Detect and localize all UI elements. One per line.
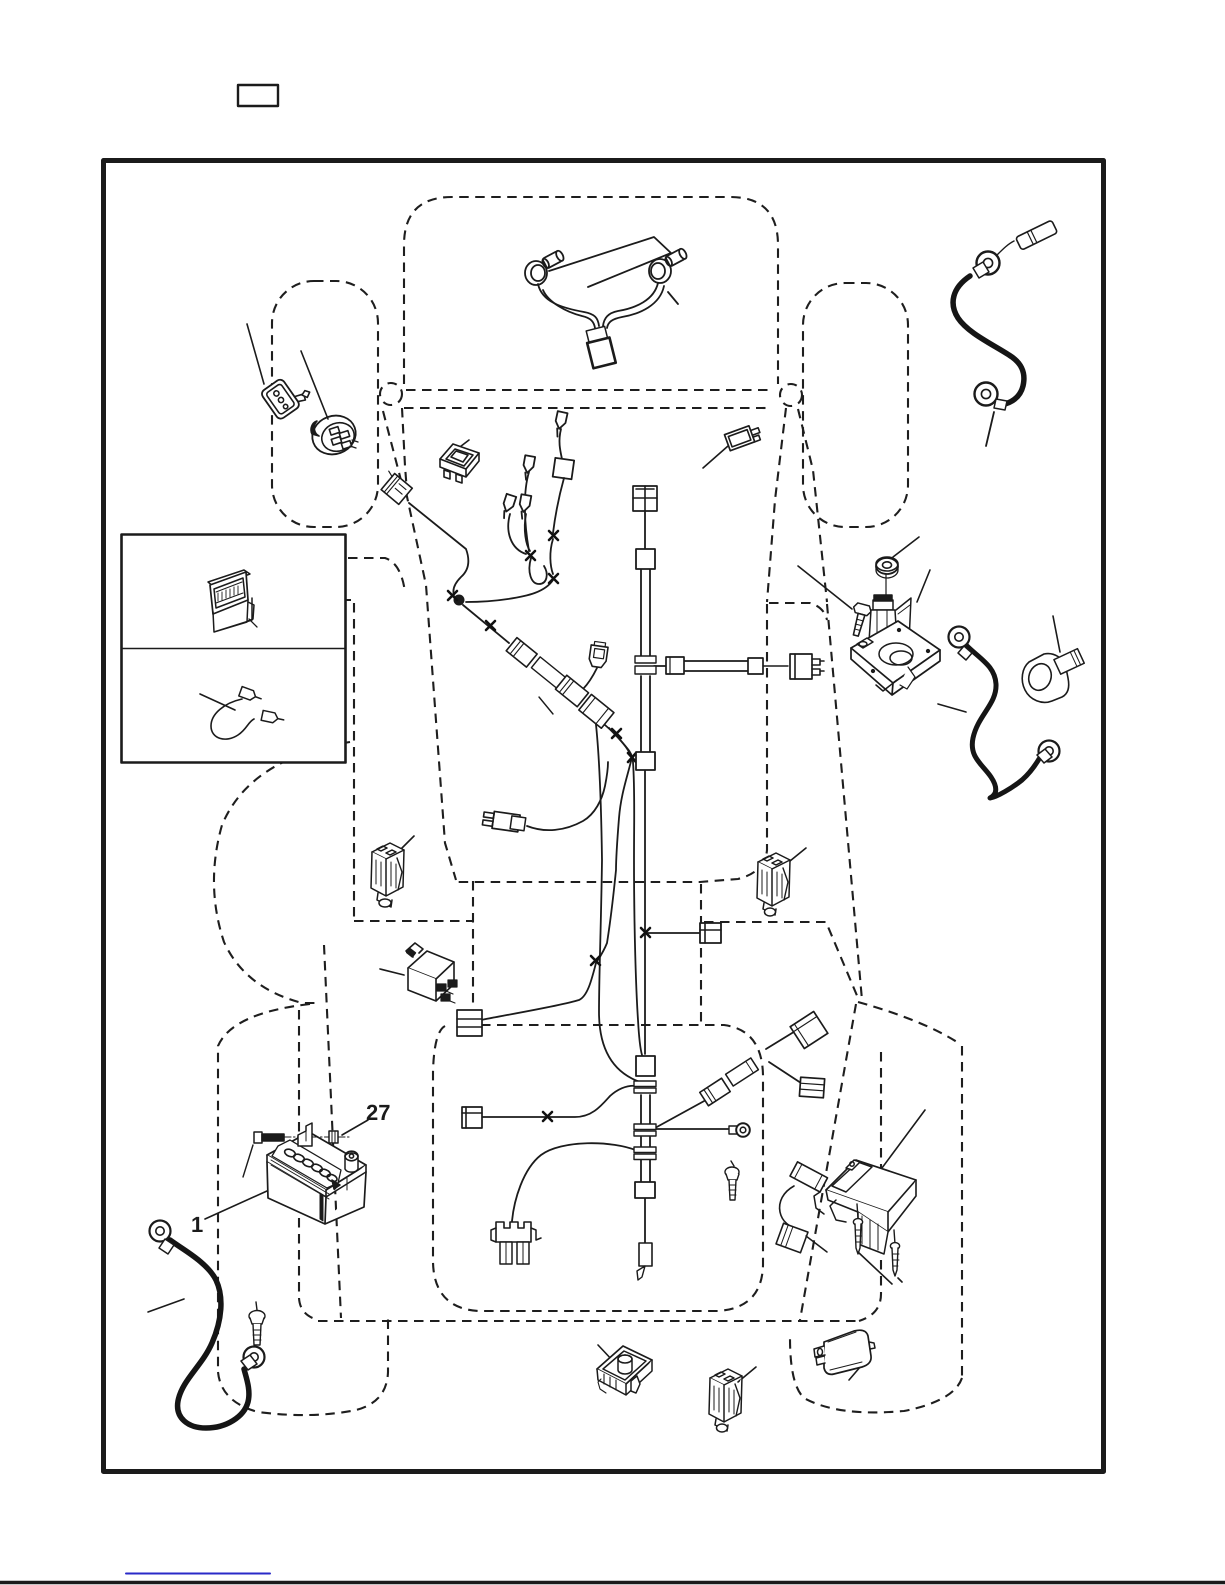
svg-text:1: 1 bbox=[191, 1212, 203, 1237]
svg-text:27: 27 bbox=[366, 1100, 390, 1125]
